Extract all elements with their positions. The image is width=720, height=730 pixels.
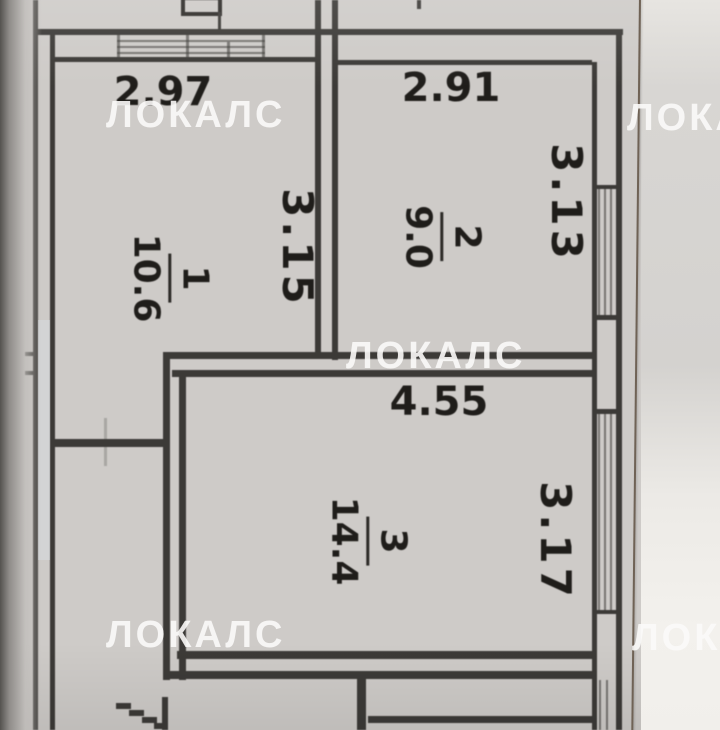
window-hatch-line (610, 414, 612, 610)
floor-plan-photo: 2.97 2.91 4.55 3.15 3.13 3.17 1 10.6 2 9… (0, 0, 720, 730)
wall-cavity-line (606, 680, 608, 730)
window-hatch-line (598, 414, 600, 610)
window-divider-tick (227, 42, 230, 60)
room3-top-dimension: 4.55 (384, 382, 494, 422)
wall-room1-corridor (50, 439, 168, 447)
pencil-mark (104, 418, 107, 466)
room2-top-dimension: 2.91 (396, 68, 506, 108)
watermark-top-left: ЛОКАЛС (106, 96, 285, 134)
wall-room3-south-inner (168, 671, 592, 679)
room3-number: 3 (367, 516, 412, 565)
vent-shaft-box (181, 0, 222, 16)
watermark-bottom-left: ЛОКАЛС (106, 616, 285, 654)
room3-area: 14.4 (325, 497, 367, 586)
top-edge-mark (417, 0, 421, 9)
window-hatch-line (604, 189, 606, 315)
room1-area: 10.6 (127, 234, 169, 323)
wall-left-outer (33, 0, 38, 730)
wall-bottom-stub (368, 716, 592, 723)
window-hatch-line (117, 52, 265, 54)
wall-partition-room1-room2-b (332, 0, 338, 360)
window-hatch-line (117, 40, 265, 42)
wall-bottom-partition (357, 679, 366, 730)
zigzag-step (116, 703, 131, 709)
room1-label: 1 10.6 (127, 234, 214, 323)
vent-shaft-connector (218, 12, 221, 30)
zigzag-step (129, 710, 144, 716)
room2-area: 9.0 (399, 205, 441, 269)
left-wall-tick (25, 352, 33, 356)
room3-side-dimension: 3.17 (534, 481, 576, 601)
room1-side-dimension: 3.15 (276, 188, 318, 308)
watermark-bottom-right: ЛОКАЛС (632, 619, 720, 657)
window-hatch-line (604, 414, 606, 610)
window-divider-tick (186, 35, 189, 60)
left-wall-tick (25, 371, 33, 375)
window-hatch-line (598, 189, 600, 315)
wall-top-outer (33, 29, 623, 35)
room1-number: 1 (169, 253, 214, 302)
watermark-center: ЛОКАЛС (346, 337, 525, 375)
zigzag-bar (162, 697, 168, 730)
wall-top-inner-left (50, 57, 318, 62)
window-hatch-line (610, 189, 612, 315)
window3-cap-top (592, 409, 622, 414)
watermark-top-right: ЛОКАЛС (627, 99, 720, 137)
window2-cap-bottom (592, 315, 622, 320)
window-end-tick (262, 35, 265, 60)
window3-cap-bottom (592, 610, 622, 614)
wall-right-outer (616, 29, 622, 730)
window-end-tick (117, 35, 120, 60)
wall-left-inner (50, 29, 55, 730)
room3-label: 3 14.4 (325, 497, 412, 586)
room2-side-dimension: 3.13 (545, 143, 587, 263)
window-hatch-line (117, 46, 265, 48)
wall-cavity-line (599, 680, 601, 730)
room2-label: 2 9.0 (399, 205, 486, 269)
window2-cap-top (592, 185, 622, 189)
wall-right-inner (592, 62, 597, 730)
room2-number: 2 (441, 212, 486, 261)
